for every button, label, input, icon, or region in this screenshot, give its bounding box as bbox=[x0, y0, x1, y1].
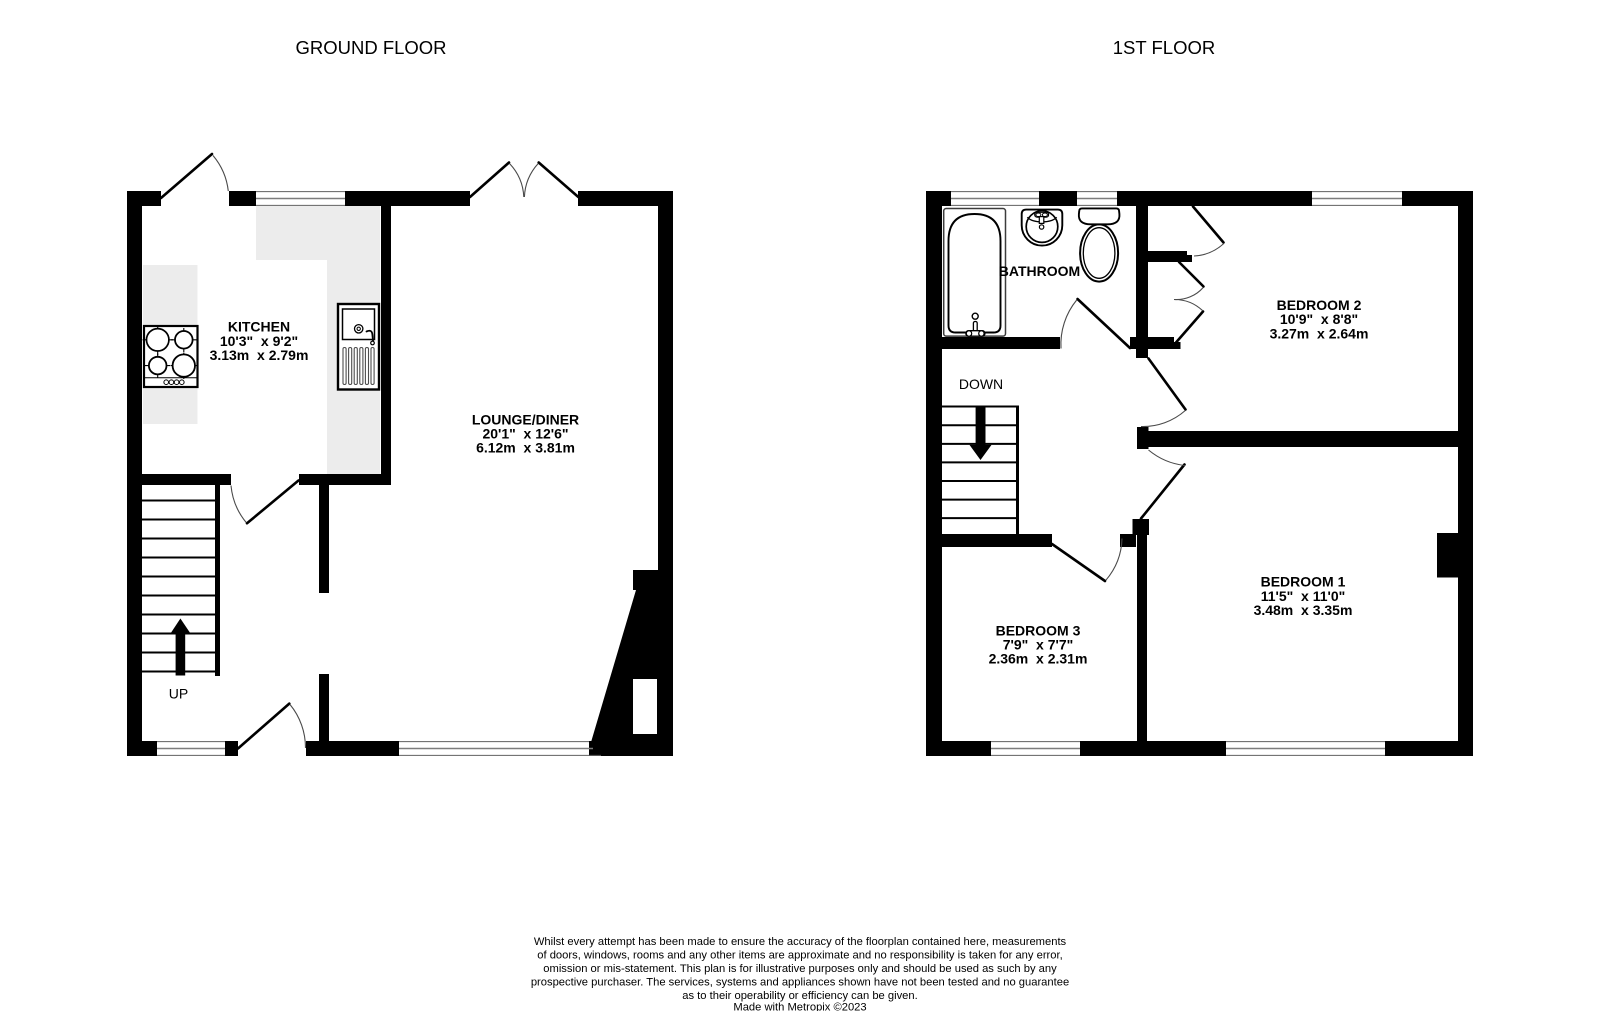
svg-text:6.12m x 3.81m: 6.12m x 3.81m bbox=[476, 440, 575, 456]
svg-text:Made with Metropix ©2023: Made with Metropix ©2023 bbox=[733, 1002, 866, 1011]
svg-text:as to their operability or eff: as to their operability or efficiency ca… bbox=[682, 990, 917, 1002]
svg-text:3.27m x 2.64m: 3.27m x 2.64m bbox=[1270, 325, 1369, 341]
svg-text:2.36m x 2.31m: 2.36m x 2.31m bbox=[989, 650, 1088, 666]
svg-text:of doors, windows, rooms and a: of doors, windows, rooms and any other i… bbox=[537, 950, 1062, 962]
svg-text:3.48m x 3.35m: 3.48m x 3.35m bbox=[1254, 602, 1353, 618]
svg-text:BATHROOM: BATHROOM bbox=[999, 263, 1080, 279]
svg-text:3.13m x 2.79m: 3.13m x 2.79m bbox=[210, 347, 309, 363]
svg-text:Whilst every attempt has been: Whilst every attempt has been made to en… bbox=[534, 936, 1067, 948]
svg-text:prospective purchaser. The ser: prospective purchaser. The services, sys… bbox=[531, 977, 1069, 989]
svg-text:1ST FLOOR: 1ST FLOOR bbox=[1113, 37, 1215, 58]
svg-text:UP: UP bbox=[169, 686, 188, 702]
svg-text:omission or mis-statement. Thi: omission or mis-statement. This plan is … bbox=[543, 963, 1057, 975]
svg-text:GROUND FLOOR: GROUND FLOOR bbox=[295, 37, 446, 58]
svg-text:DOWN: DOWN bbox=[959, 376, 1003, 392]
